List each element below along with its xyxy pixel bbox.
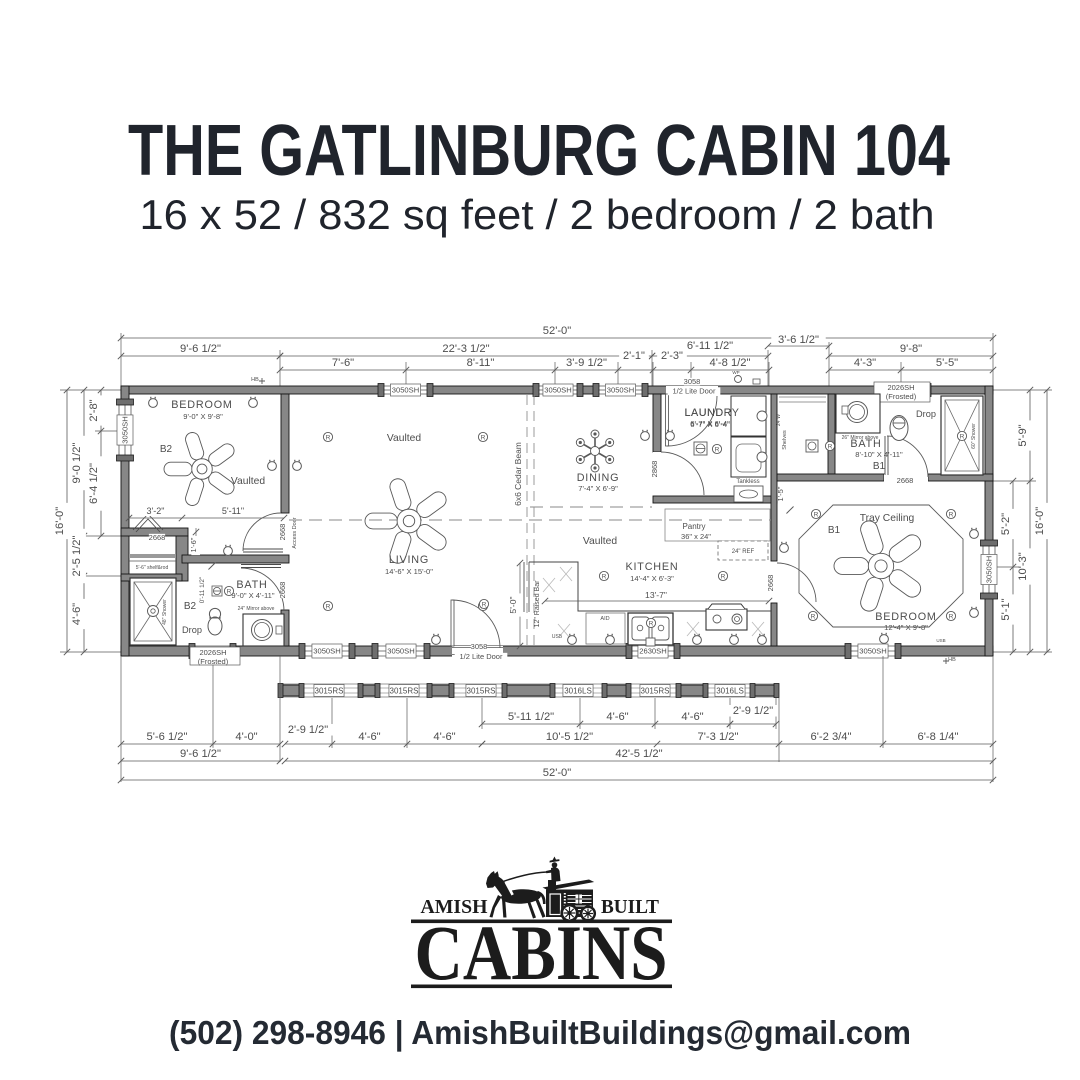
svg-text:THE GATLINBURG CABIN 104: THE GATLINBURG CABIN 104 [128, 110, 950, 191]
svg-text:(502) 298-8946 | AmishBuiltB: (502) 298-8946 | AmishBuiltBuildings@gma… [169, 1014, 911, 1051]
svg-text:16 x 52 / 832 sq feet / 2 bedr: 16 x 52 / 832 sq feet / 2 bedroom / 2 ba… [140, 191, 935, 238]
svg-text:CABINS: CABINS [415, 909, 668, 996]
